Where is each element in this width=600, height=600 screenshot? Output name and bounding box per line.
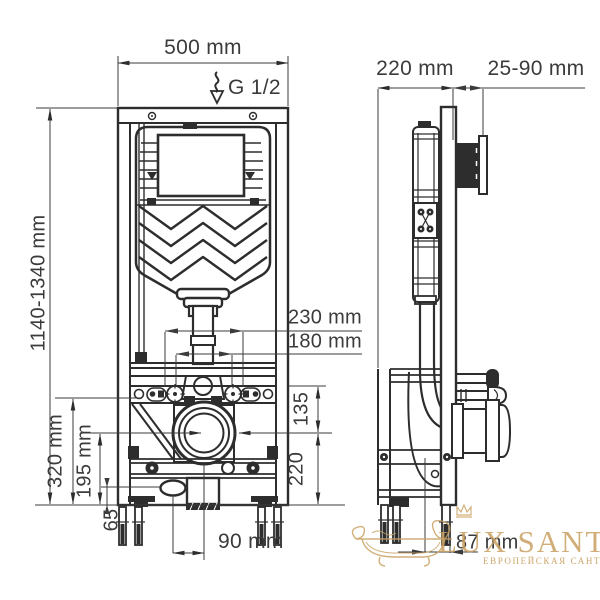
dim-195-label: 195 mm xyxy=(74,424,97,498)
inlet-oval xyxy=(161,481,186,496)
dim-90-label: 90 mm xyxy=(218,530,284,554)
fill-valve-nub xyxy=(183,122,197,129)
mounting-studs xyxy=(456,369,506,404)
water-supply-label: G 1/2 xyxy=(228,76,281,100)
flush-actuator-box xyxy=(455,136,487,194)
dim-height-label: 1140-1340 mm xyxy=(28,215,51,352)
tank-waves xyxy=(139,206,267,280)
dim-wall-distance-label: 25-90 mm xyxy=(488,57,585,81)
louvers-left xyxy=(139,143,158,188)
louvers-right xyxy=(244,143,263,188)
dim-220-vertical-label: 220 xyxy=(286,452,309,486)
watermark-tagline: ЕВРОПЕЙСКАЯ САНТЕХНИКА xyxy=(483,556,600,566)
dim-fixing-outer-label: 230 mm xyxy=(288,307,362,330)
mount-bracket xyxy=(414,203,437,238)
front-view xyxy=(116,72,288,545)
dim-width-label: 500 mm xyxy=(164,36,242,60)
dim-depth-label: 220 mm xyxy=(376,57,454,81)
dim-65-label: 65 xyxy=(101,509,124,532)
dim-135-label: 135 xyxy=(291,392,314,426)
drain-outlet xyxy=(452,400,510,461)
technical-drawing-canvas: 500 mm G 1/2 1140-1340 mm 230 mm 180 mm … xyxy=(0,0,600,600)
dim-320-label: 320 mm xyxy=(45,414,68,488)
cistern-front xyxy=(136,122,270,295)
line-art xyxy=(0,0,600,600)
watermark-brand: LUX SANTEH xyxy=(438,524,600,560)
side-view xyxy=(378,107,510,545)
access-window xyxy=(158,135,244,196)
cistern-side xyxy=(413,121,439,304)
dim-fixing-inner-label: 180 mm xyxy=(288,331,362,354)
pipe-holder xyxy=(182,376,224,403)
crown-icon xyxy=(456,505,472,517)
water-supply-icon xyxy=(211,72,223,103)
